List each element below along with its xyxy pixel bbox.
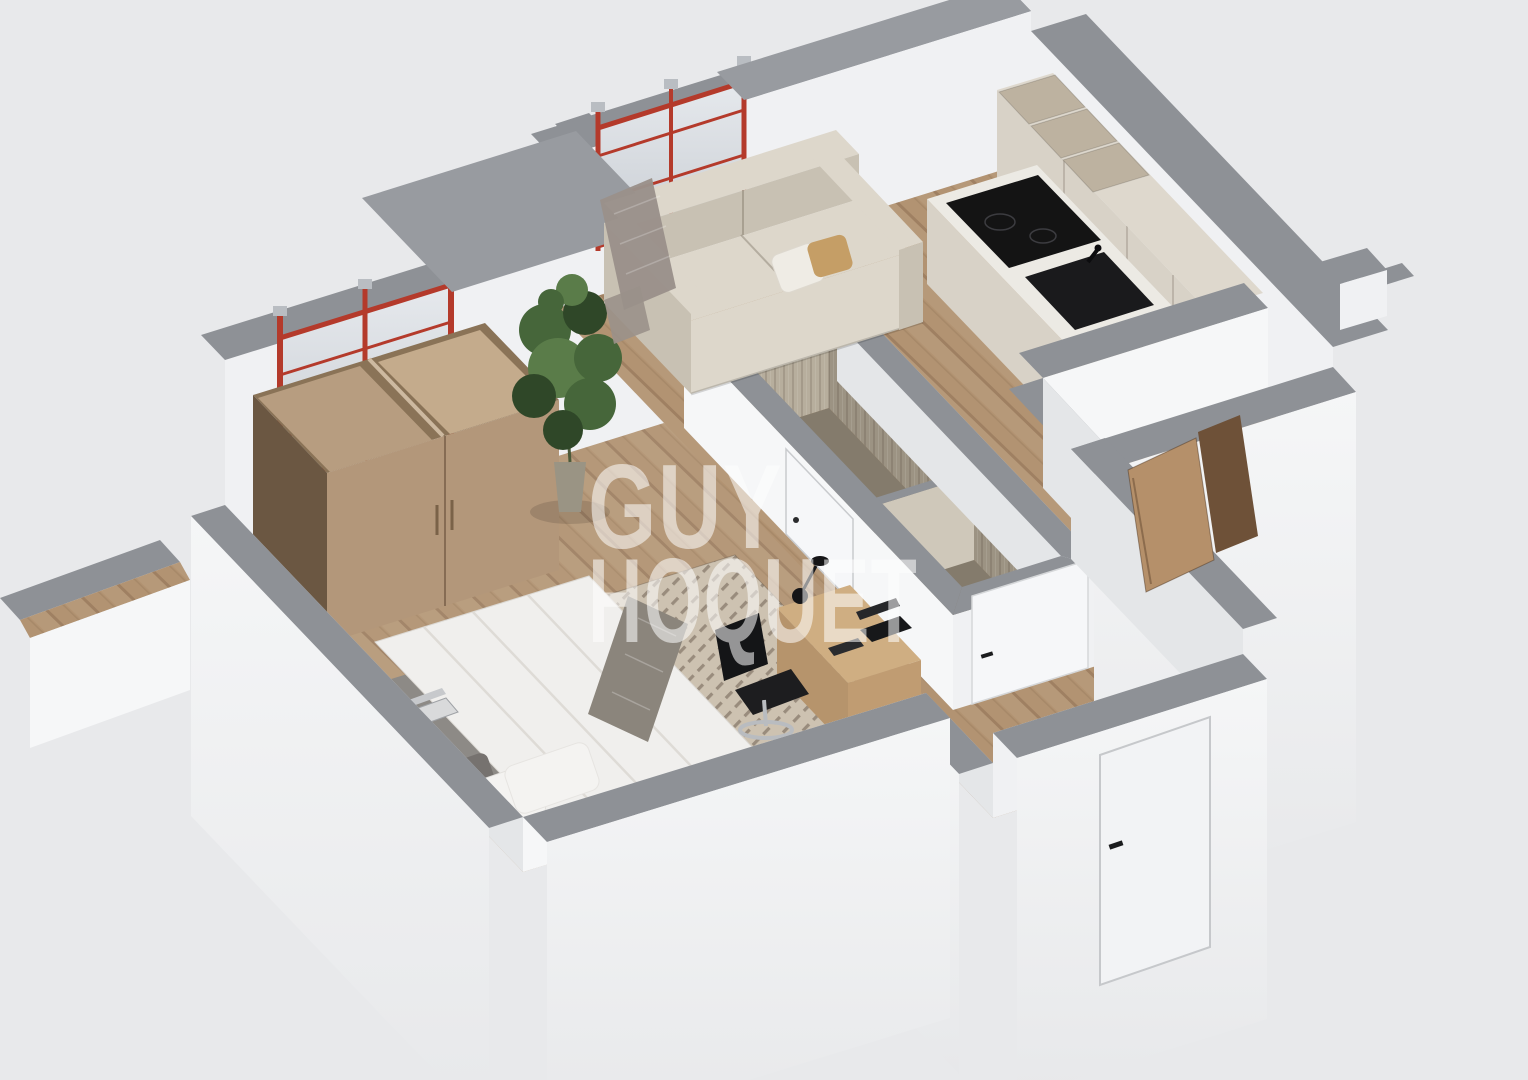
- plant-leaves: [512, 374, 556, 418]
- watermark-line2: HOQUET: [588, 534, 918, 668]
- plant-leaves: [538, 289, 564, 315]
- faucet-head: [1095, 245, 1102, 252]
- entrance-door-leaf: [1100, 717, 1210, 985]
- door-handle: [793, 517, 799, 523]
- entrance-door: [1100, 717, 1210, 985]
- window-cap: [591, 102, 605, 112]
- window-cap: [273, 306, 287, 316]
- sofa-arm-face: [899, 242, 923, 330]
- plant-pot: [554, 462, 586, 512]
- plant-leaves: [543, 410, 583, 450]
- window-cap: [358, 279, 372, 289]
- apartment-3d-scene: GUY HOQUET: [0, 0, 1528, 1080]
- window-cap: [664, 79, 678, 89]
- floor-plan-render: GUY HOQUET: [0, 0, 1528, 1080]
